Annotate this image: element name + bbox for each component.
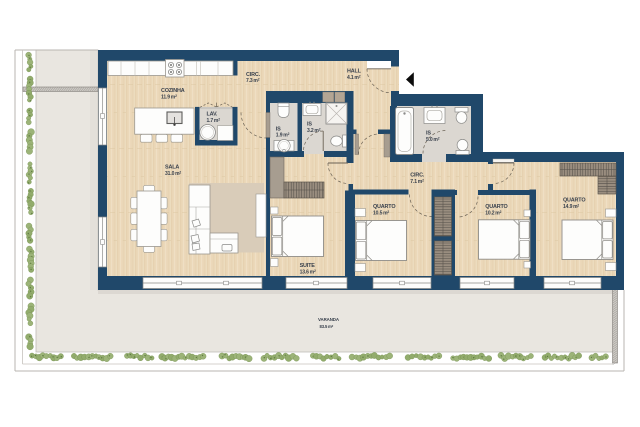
- svg-text:5.0 m2: 5.0 m2: [426, 137, 440, 144]
- svg-text:QUARTO: QUARTO: [563, 197, 585, 203]
- svg-text:4.1 m2: 4.1 m2: [347, 74, 361, 81]
- svg-text:COZINHA: COZINHA: [161, 88, 185, 94]
- svg-text:1.9 m2: 1.9 m2: [276, 132, 290, 139]
- svg-text:31.0 m2: 31.0 m2: [165, 171, 181, 178]
- svg-text:10.5 m2: 10.5 m2: [373, 210, 389, 217]
- svg-text:VARANDA: VARANDA: [318, 317, 340, 322]
- svg-text:13.6 m2: 13.6 m2: [300, 269, 316, 276]
- svg-text:SUITE: SUITE: [300, 263, 316, 269]
- svg-text:IS: IS: [307, 121, 312, 127]
- svg-text:83.5 m2: 83.5 m2: [320, 324, 334, 329]
- svg-text:IS: IS: [426, 131, 431, 137]
- svg-text:QUARTO: QUARTO: [485, 204, 507, 210]
- svg-text:3.2 m2: 3.2 m2: [307, 127, 321, 134]
- svg-text:10.2 m2: 10.2 m2: [485, 210, 501, 217]
- svg-text:7.1 m2: 7.1 m2: [410, 178, 424, 185]
- svg-text:7.3 m2: 7.3 m2: [246, 78, 260, 85]
- svg-text:QUARTO: QUARTO: [373, 204, 395, 210]
- svg-text:14.9 m2: 14.9 m2: [563, 203, 579, 210]
- svg-text:1.7 m2: 1.7 m2: [207, 117, 221, 124]
- svg-text:SALA: SALA: [165, 164, 179, 170]
- svg-text:11.9 m2: 11.9 m2: [161, 94, 177, 101]
- svg-text:IS: IS: [276, 126, 281, 132]
- svg-text:LAV.: LAV.: [207, 112, 218, 118]
